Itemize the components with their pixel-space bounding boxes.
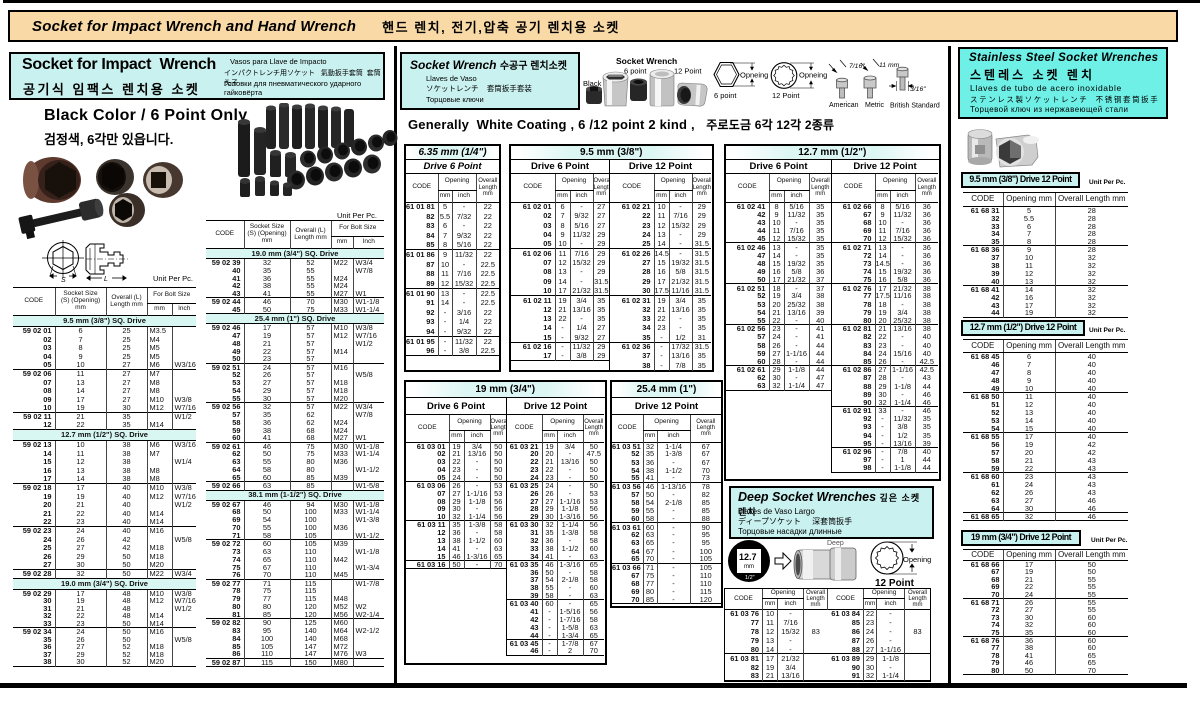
svg-text:Opneing: Opneing [799,71,827,80]
svg-text:Opening: Opening [903,555,931,564]
svg-text:mm: mm [744,564,754,570]
svg-text:British Standard: British Standard [890,103,940,110]
svg-text:6 point: 6 point [624,67,647,76]
svg-text:12 Point: 12 Point [674,67,702,76]
svg-text:11 mm: 11 mm [879,62,900,69]
svg-text:3/16": 3/16" [910,86,926,93]
svg-text:Opneing: Opneing [740,71,768,80]
svg-text:6 point: 6 point [714,91,737,100]
svg-text:12 Point: 12 Point [772,91,800,100]
svg-text:S: S [61,277,66,284]
svg-text:1/2": 1/2" [745,575,755,581]
svg-text:12.7: 12.7 [739,552,757,562]
svg-text:L: L [104,276,108,283]
svg-text:12 Point: 12 Point [875,578,915,588]
svg-text:Socket Wrench: Socket Wrench [616,56,677,66]
svg-text:Deep: Deep [827,540,844,547]
svg-text:Metric: Metric [865,102,885,109]
svg-text:American: American [829,102,859,109]
svg-text:7/16": 7/16" [849,63,865,70]
